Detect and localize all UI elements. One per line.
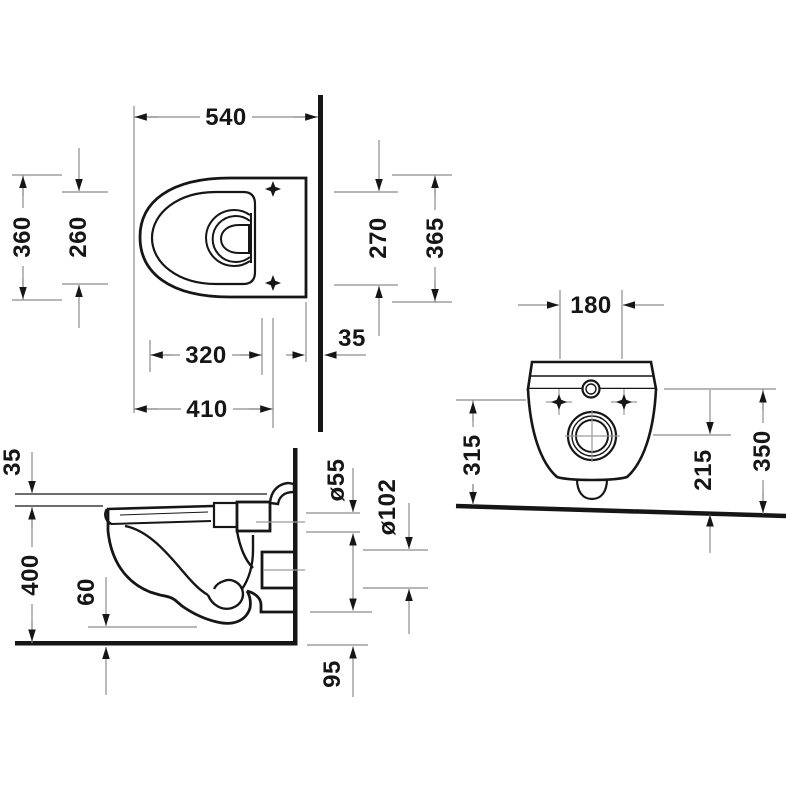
- side-view: 35 400 60 ø55 ø102: [0, 448, 428, 697]
- dim-410: 410: [134, 396, 273, 423]
- dim-365: 365: [422, 175, 449, 302]
- dim-320-label: 320: [185, 342, 227, 369]
- water-inlet-bend: [270, 483, 294, 504]
- dim-215-label: 215: [690, 449, 717, 491]
- dim-350-label: 350: [749, 430, 776, 472]
- dim-270-label: 270: [365, 217, 392, 259]
- dim-360-label: 360: [9, 216, 36, 258]
- dim-95-label: 95: [319, 660, 346, 688]
- dim-35-side: 35: [0, 448, 32, 493]
- dim-315-label: 315: [459, 434, 486, 476]
- dim-60: 60: [73, 577, 106, 695]
- dim-215: 215: [690, 390, 717, 553]
- dim-60-label: 60: [73, 578, 100, 606]
- top-view: 540 360 260 270 365: [9, 95, 452, 432]
- dim-55-label: ø55: [323, 459, 350, 502]
- dim-102-label: ø102: [374, 479, 401, 536]
- dim-95: 95: [319, 647, 353, 698]
- dim-320: 320: [150, 342, 262, 369]
- dim-540: 540: [134, 104, 318, 131]
- trap-bulge-rear: [577, 479, 607, 499]
- inlet-hole: [583, 381, 600, 398]
- dim-400: 400: [17, 506, 44, 643]
- rear-view: 180 315 215 350: [456, 290, 786, 553]
- dim-360: 360: [9, 175, 36, 300]
- dim-540-label: 540: [205, 104, 247, 131]
- dim-260-label: 260: [65, 216, 92, 258]
- dim-102: ø102: [374, 479, 409, 634]
- dim-180-label: 180: [570, 292, 612, 319]
- floor-line-rear-view: [456, 506, 786, 516]
- dim-35-side-label: 35: [0, 448, 26, 476]
- dim-55: ø55: [323, 459, 353, 611]
- dim-315: 315: [459, 400, 486, 505]
- floor-line-side-view: [15, 641, 298, 646]
- dimension-drawing-page: 540 360 260 270 365: [0, 0, 800, 800]
- dim-35-top: 35: [286, 325, 366, 355]
- dim-400-label: 400: [17, 554, 44, 596]
- dim-270: 270: [365, 140, 392, 336]
- dim-35-top-label: 35: [338, 325, 366, 352]
- wall-section-side-view: [293, 448, 298, 645]
- dim-350: 350: [749, 389, 776, 514]
- dim-260: 260: [65, 148, 92, 328]
- wall-section-top-view: [318, 95, 323, 432]
- dimension-drawing: 540 360 260 270 365: [0, 0, 800, 800]
- dim-180: 180: [518, 292, 664, 319]
- toilet-body-outline-top: [140, 178, 306, 297]
- dim-410-label: 410: [186, 396, 228, 423]
- dim-365-label: 365: [422, 217, 449, 259]
- toilet-body-rear: [528, 362, 656, 499]
